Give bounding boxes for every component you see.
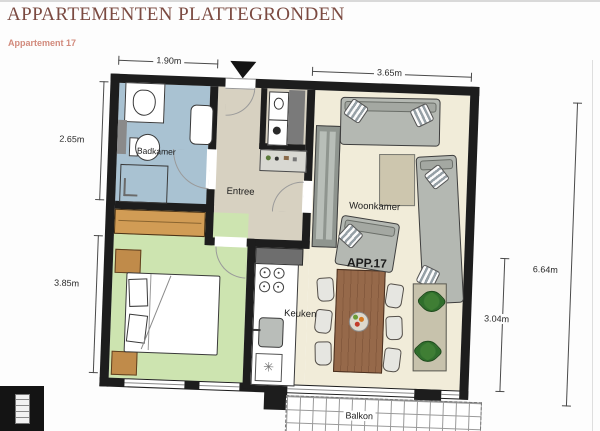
dining-chair [385, 316, 403, 341]
dimension-label: 3.65m [374, 67, 405, 78]
floorplan-page: APPARTEMENTEN PLATTEGRONDEN Appartement … [0, 0, 600, 431]
dining-chair [314, 309, 333, 335]
dimension-label: 2.65m [59, 134, 84, 145]
dimension-line-badkamer-diepte [99, 81, 104, 200]
nightstand-bottom [111, 351, 138, 376]
dining-chair [382, 347, 402, 373]
dimension-line-totale-diepte [566, 103, 578, 407]
dining-chair [314, 341, 331, 365]
dimension-line-slaapkamer-diepte [93, 235, 99, 373]
adjacent-plan-fragment [0, 386, 44, 431]
floorplan-drawing: ✳ Badkamer Entree Woonkamer Keuken A [0, 0, 600, 431]
nightstand-top [115, 249, 142, 274]
room-label-balkon: Balkon [343, 410, 375, 421]
livingroom-window-right [441, 391, 459, 399]
coffee-table [379, 154, 415, 206]
bed-pillow [128, 278, 148, 307]
counter-item [293, 157, 297, 161]
entrance-arrow-icon [230, 61, 257, 79]
dining-chair [316, 277, 335, 302]
kitchen-sink [258, 317, 284, 348]
shower-fixture-icon [123, 178, 138, 197]
dimension-label: 1.90m [153, 55, 184, 66]
counter-item [284, 156, 289, 160]
badkamer-duct [117, 120, 127, 154]
dimension-label: 3.04m [482, 313, 511, 324]
sink-faucet-icon [252, 329, 260, 331]
balkon-area [285, 395, 482, 431]
radiator-icon [15, 394, 30, 424]
bedroom-window-2 [199, 382, 239, 390]
dimension-label: 3.85m [54, 278, 79, 289]
apartment-number-label: APP.17 [347, 255, 387, 270]
dimension-line-woonkeuken-diepte [499, 258, 505, 392]
bathtub [189, 104, 213, 145]
wall-pier-balkon-left [264, 383, 288, 410]
dimension-label: 6.64m [531, 264, 560, 275]
closet-duct [287, 90, 305, 145]
freezer: ✳ [255, 353, 283, 382]
entree-counter [259, 149, 307, 173]
room-label-entree: Entree [226, 186, 254, 198]
room-label-woonkamer: Woonkamer [349, 200, 400, 213]
room-label-keuken: Keuken [284, 308, 317, 320]
room-label-badkamer: Badkamer [137, 146, 176, 157]
